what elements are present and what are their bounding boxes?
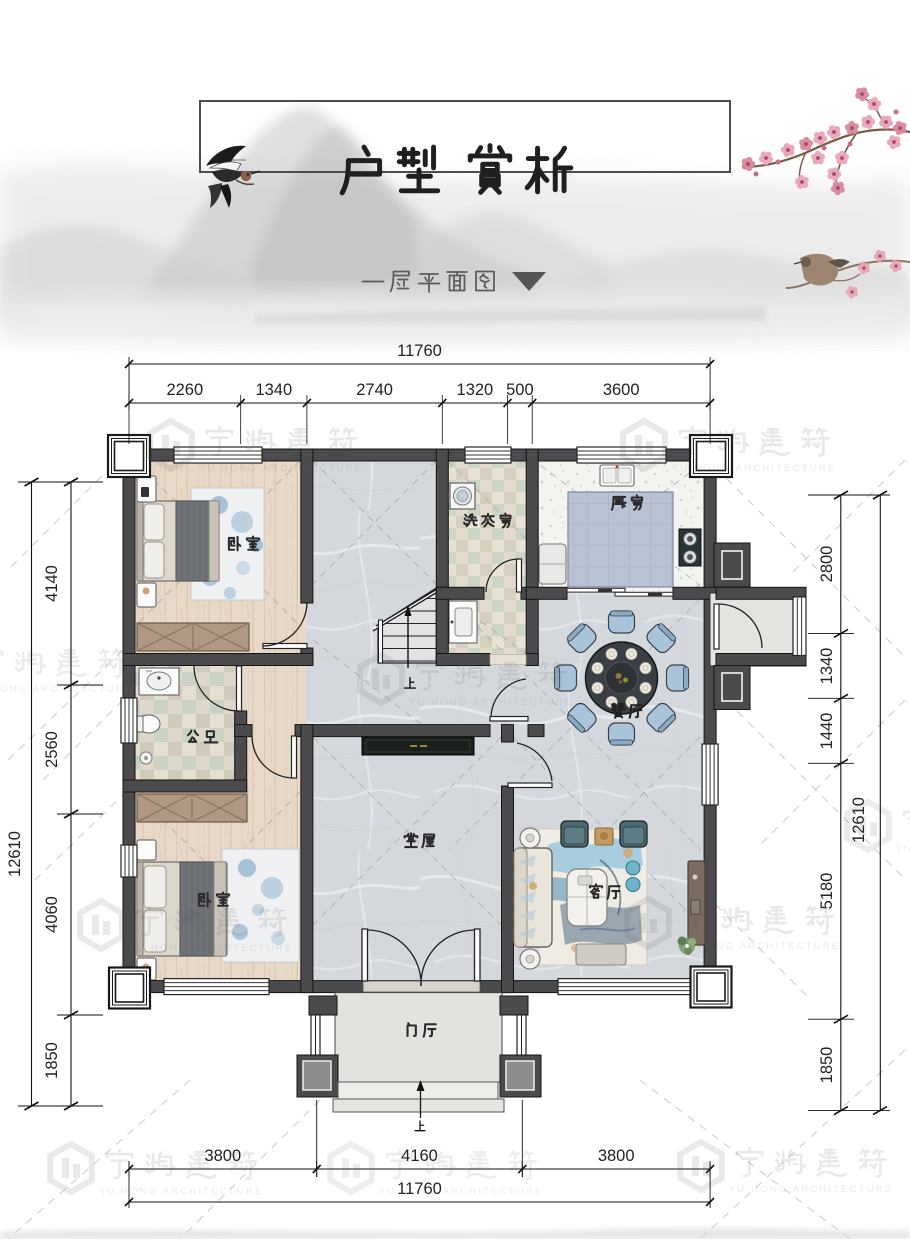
svg-text:YU HONG ARCHITECTURE: YU HONG ARCHITECTURE bbox=[129, 943, 294, 954]
svg-text:1340: 1340 bbox=[255, 381, 292, 399]
svg-text:YU HONG ARCHITECTURE: YU HONG ARCHITECTURE bbox=[672, 463, 837, 474]
svg-text:1440: 1440 bbox=[818, 713, 836, 750]
svg-text:YU HONG ARCHITECTURE: YU HONG ARCHITECTURE bbox=[199, 463, 364, 474]
svg-text:YU HONG ARCHITECTURE: YU HONG ARCHITECTURE bbox=[409, 697, 574, 708]
svg-text:1340: 1340 bbox=[818, 648, 836, 685]
svg-text:YU HONG ARCHITECTURE: YU HONG ARCHITECTURE bbox=[379, 1186, 544, 1197]
svg-text:1850: 1850 bbox=[818, 1047, 836, 1084]
svg-text:3600: 3600 bbox=[603, 381, 640, 399]
svg-text:4140: 4140 bbox=[43, 565, 61, 602]
svg-text:2740: 2740 bbox=[356, 381, 393, 399]
svg-text:YU HONG ARCHITECTURE: YU HONG ARCHITECTURE bbox=[676, 941, 841, 952]
svg-text:YU HONG ARCHITECTURE: YU HONG ARCHITECTURE bbox=[0, 684, 133, 695]
svg-text:500: 500 bbox=[506, 381, 534, 399]
svg-text:5180: 5180 bbox=[818, 873, 836, 910]
svg-text:3800: 3800 bbox=[598, 1147, 635, 1165]
svg-text:1850: 1850 bbox=[43, 1042, 61, 1079]
svg-text:4060: 4060 bbox=[43, 896, 61, 933]
svg-text:YU HONG ARCHITECTURE: YU HONG ARCHITECTURE bbox=[729, 1184, 894, 1195]
svg-text:2800: 2800 bbox=[818, 546, 836, 583]
svg-text:11760: 11760 bbox=[397, 342, 442, 360]
svg-text:1320: 1320 bbox=[457, 381, 494, 399]
svg-text:12610: 12610 bbox=[6, 831, 24, 877]
svg-text:2260: 2260 bbox=[166, 381, 203, 399]
svg-text:YU HONG ARCHITECTURE: YU HONG ARCHITECTURE bbox=[896, 844, 910, 855]
svg-text:YU HONG ARCHITECTURE: YU HONG ARCHITECTURE bbox=[99, 1186, 264, 1197]
svg-text:2560: 2560 bbox=[43, 731, 61, 768]
